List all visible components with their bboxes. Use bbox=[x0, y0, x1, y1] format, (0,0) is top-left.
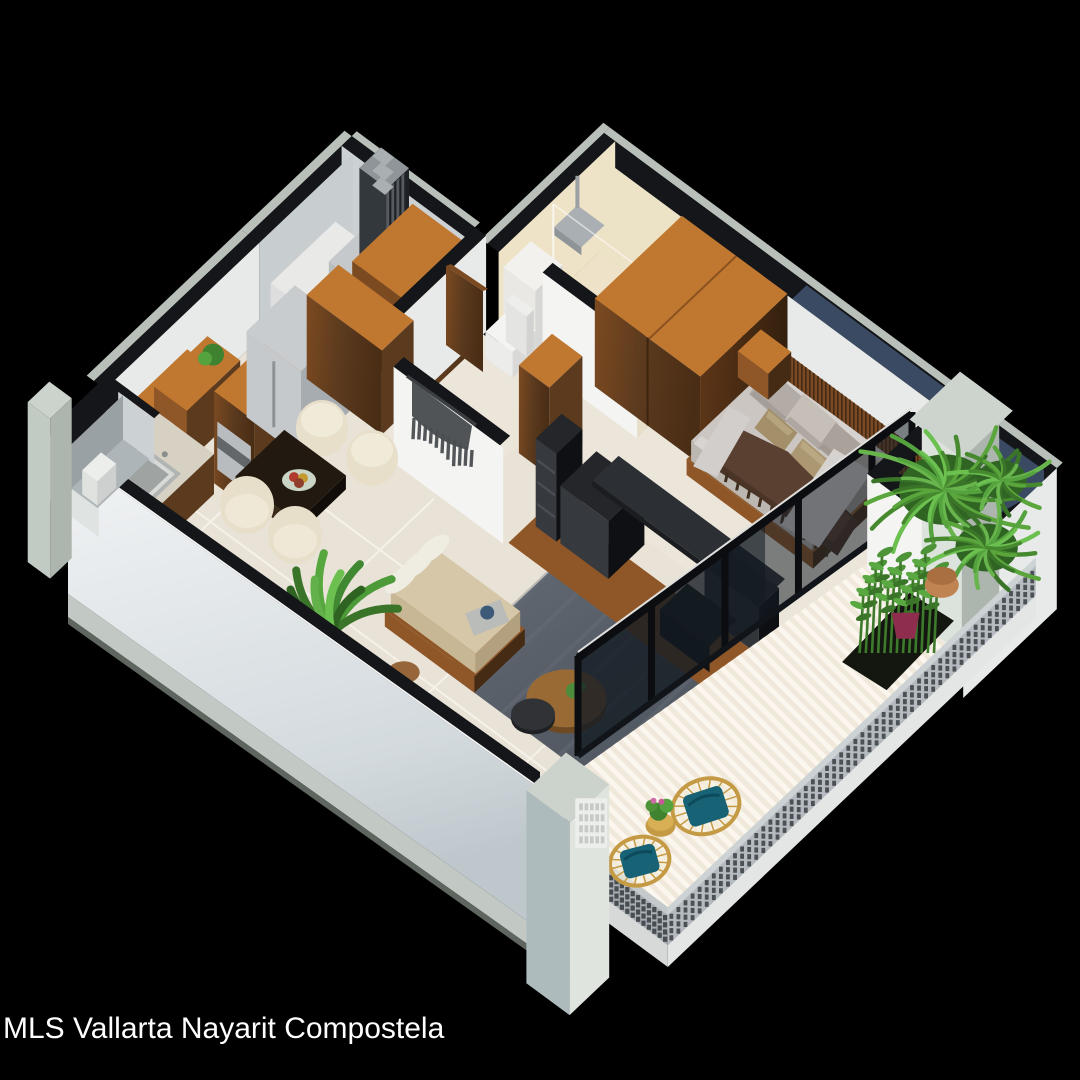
svg-text:MLS Vallarta Nayarit Compostel: MLS Vallarta Nayarit Compostela bbox=[3, 1012, 445, 1045]
